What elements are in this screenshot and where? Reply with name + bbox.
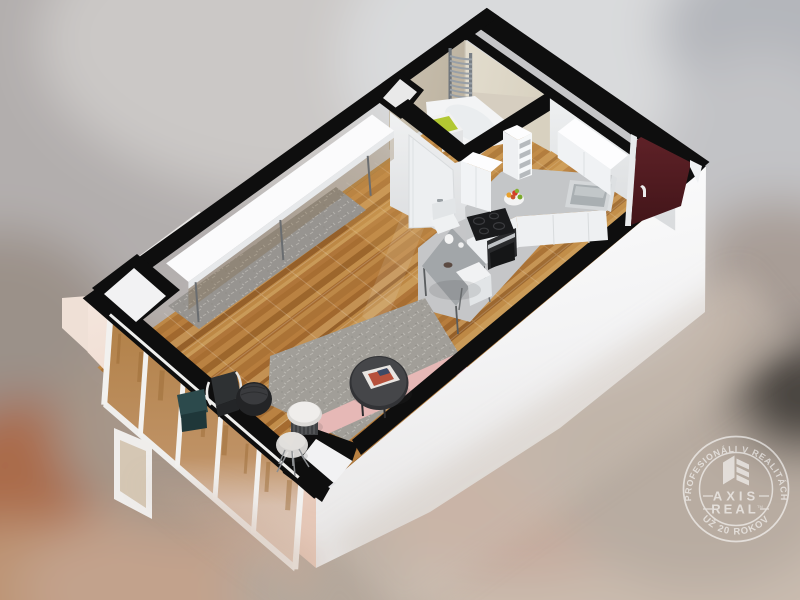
svg-text:TM: TM	[757, 504, 763, 509]
svg-text:REAL: REAL	[711, 502, 758, 517]
